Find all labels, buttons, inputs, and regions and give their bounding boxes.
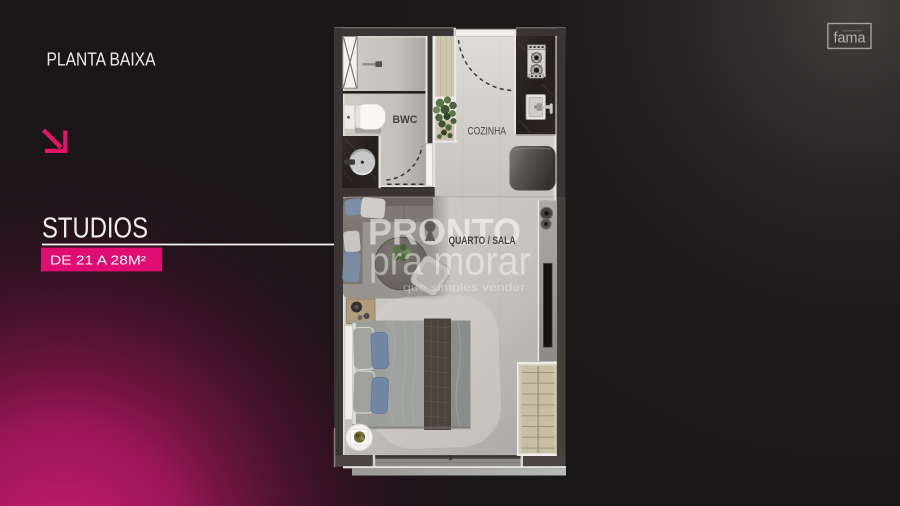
svg-text:BWC: BWC [393, 114, 418, 126]
svg-text:DE 21 A 28M²: DE 21 A 28M² [50, 253, 147, 268]
svg-text:PLANTA BAIXA: PLANTA BAIXA [47, 49, 156, 69]
svg-text:COZINHA: COZINHA [468, 125, 507, 137]
svg-text:que simples vender: que simples vender [403, 282, 525, 294]
svg-text:STUDIOS: STUDIOS [42, 213, 148, 245]
svg-text:fama: fama [834, 29, 867, 46]
svg-text:QUARTO / SALA: QUARTO / SALA [449, 235, 516, 247]
